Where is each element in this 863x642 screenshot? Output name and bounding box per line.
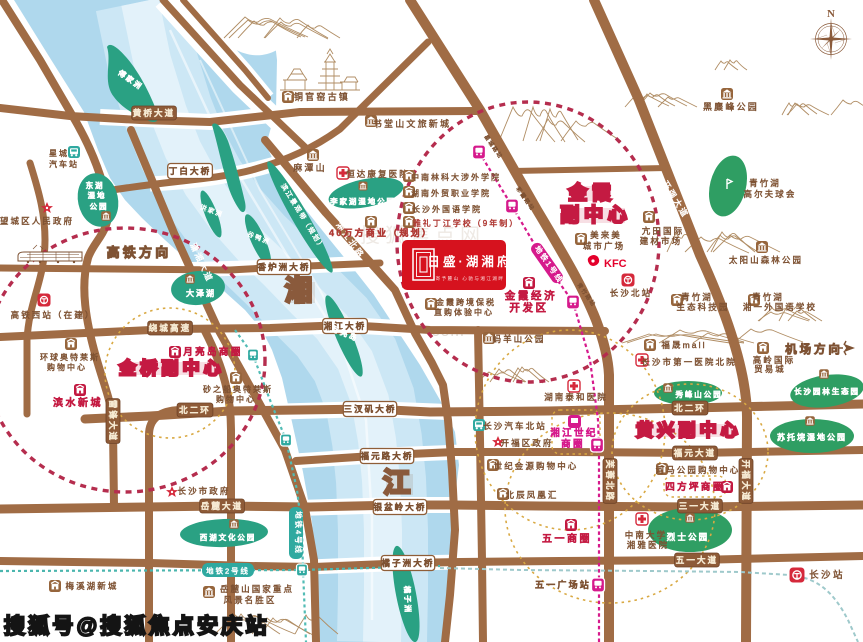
svg-text:开福大道: 开福大道 — [741, 460, 751, 502]
svg-text:五一广场站: 五一广场站 — [535, 579, 591, 590]
svg-text:湘雅医院: 湘雅医院 — [627, 540, 669, 550]
svg-text:四方坪商圈: 四方坪商圈 — [665, 481, 725, 493]
svg-text:中南大学: 中南大学 — [625, 530, 667, 540]
svg-text:城市广场: 城市广场 — [583, 241, 625, 251]
svg-text:雅礼丁江学校（9年制）: 雅礼丁江学校（9年制） — [413, 218, 519, 228]
svg-text:汽车站: 汽车站 — [49, 159, 79, 169]
svg-text:大泽湖: 大泽湖 — [186, 288, 216, 298]
svg-text:李家湖湿地公园: 李家湖湿地公园 — [329, 196, 396, 206]
svg-text:麻潭山: 麻潭山 — [293, 162, 327, 173]
svg-text:银盆岭大桥: 银盆岭大桥 — [372, 502, 426, 512]
svg-text:湖南外贸职业学院: 湖南外贸职业学院 — [411, 188, 491, 198]
svg-text:长沙市第一医院北院: 长沙市第一医院北院 — [641, 357, 736, 367]
svg-text:高铁西站（在建）: 高铁西站（在建） — [11, 310, 96, 320]
svg-text:购物中心: 购物中心 — [47, 362, 87, 372]
svg-text:开福区政府: 开福区政府 — [500, 438, 553, 448]
svg-text:湖南泰和医院: 湖南泰和医院 — [544, 392, 608, 402]
svg-text:蚂羊山公园: 蚂羊山公园 — [492, 334, 545, 344]
svg-text:青竹湖: 青竹湖 — [749, 178, 781, 188]
svg-text:高尔夫球会: 高尔夫球会 — [743, 189, 796, 199]
svg-text:河马公园购物中心: 河马公园购物中心 — [656, 465, 741, 475]
svg-text:滨水新城: 滨水新城 — [53, 396, 103, 409]
svg-text:北辰凤凰汇: 北辰凤凰汇 — [505, 490, 558, 500]
svg-text:长沙汽车北站: 长沙汽车北站 — [483, 421, 547, 431]
svg-text:青竹湖: 青竹湖 — [681, 292, 713, 302]
svg-text:岳麓山国家重点: 岳麓山国家重点 — [220, 584, 294, 594]
svg-text:五一商圈: 五一商圈 — [542, 532, 592, 545]
svg-text:湘江世纪: 湘江世纪 — [550, 427, 598, 439]
svg-text:北二环: 北二环 — [179, 405, 211, 415]
svg-text:湘一外国语学校: 湘一外国语学校 — [743, 302, 817, 312]
svg-text:世纪金源购物中心: 世纪金源购物中心 — [494, 461, 579, 471]
svg-text:公园: 公园 — [90, 202, 109, 211]
svg-text:书堂山文旅新城: 书堂山文旅新城 — [373, 118, 451, 129]
svg-text:恒达康复医院: 恒达康复医院 — [346, 169, 410, 179]
svg-text:丁白大桥: 丁白大桥 — [169, 166, 211, 176]
svg-text:N: N — [827, 8, 835, 20]
svg-text:日盛·湖湘府: 日盛·湖湘府 — [427, 254, 512, 269]
svg-text:高铁方向: 高铁方向 — [107, 245, 172, 260]
svg-text:寄予麓山 心驰与湘江湖畔: 寄予麓山 心驰与湘江湖畔 — [436, 275, 505, 282]
svg-text:三一大道: 三一大道 — [679, 501, 721, 511]
svg-text:美来美: 美来美 — [590, 230, 622, 240]
svg-text:青竹湖: 青竹湖 — [752, 292, 784, 302]
svg-text:橘子洲大桥: 橘子洲大桥 — [380, 558, 434, 568]
svg-text:金霞: 金霞 — [567, 181, 616, 204]
svg-text:绕城高速: 绕城高速 — [149, 323, 191, 333]
svg-text:西湖文化公园: 西湖文化公园 — [200, 532, 256, 542]
svg-text:湿地: 湿地 — [88, 190, 107, 200]
svg-text:长沙外国语学院: 长沙外国语学院 — [412, 204, 482, 214]
svg-text:雷锋大道: 雷锋大道 — [108, 400, 118, 442]
svg-text:芙蓉北路: 芙蓉北路 — [605, 459, 615, 502]
svg-text:五一大道: 五一大道 — [676, 555, 718, 565]
svg-text:生态科技园: 生态科技园 — [676, 302, 729, 312]
svg-text:风景名胜区: 风景名胜区 — [223, 595, 276, 605]
svg-text:太阳山森林公园: 太阳山森林公园 — [729, 255, 803, 265]
svg-text:长沙北站: 长沙北站 — [610, 288, 652, 298]
svg-text:梅溪湖新城: 梅溪湖新城 — [65, 581, 118, 591]
svg-text:烈士公园: 烈士公园 — [667, 532, 709, 542]
svg-text:贸易城: 贸易城 — [754, 364, 786, 374]
svg-text:橘子洲: 橘子洲 — [402, 585, 413, 615]
svg-text:江: 江 — [383, 468, 417, 498]
svg-text:三汊矶大桥: 三汊矶大桥 — [343, 404, 396, 414]
svg-text:机场方向: 机场方向 — [785, 342, 843, 356]
svg-text:长沙市政府: 长沙市政府 — [177, 486, 230, 496]
svg-text:苏托垸湿地公园: 苏托垸湿地公园 — [777, 432, 847, 442]
svg-text:黑麋峰公园: 黑麋峰公园 — [703, 101, 759, 112]
svg-text:购物中心: 购物中心 — [216, 394, 256, 404]
svg-text:月亮岛商圈: 月亮岛商圈 — [182, 346, 243, 358]
svg-text:亢田国际: 亢田国际 — [642, 226, 684, 236]
svg-text:商圈: 商圈 — [561, 438, 585, 450]
svg-text:建材市场: 建材市场 — [640, 236, 682, 246]
svg-text:砂之船奥特莱斯: 砂之船奥特莱斯 — [203, 384, 273, 394]
svg-text:北二环: 北二环 — [674, 403, 706, 413]
svg-text:岳麓大道: 岳麓大道 — [201, 501, 243, 511]
svg-text:黄桥大道: 黄桥大道 — [133, 108, 175, 118]
svg-text:铜官窑古镇: 铜官窑古镇 — [294, 91, 350, 102]
svg-text:福元路大桥: 福元路大桥 — [359, 451, 413, 461]
svg-text:金霞跨境保税: 金霞跨境保税 — [436, 297, 496, 307]
svg-text:环球奥特莱斯: 环球奥特莱斯 — [40, 352, 100, 362]
svg-text:开发区: 开发区 — [509, 301, 548, 314]
svg-text:中南林科大涉外学院: 中南林科大涉外学院 — [411, 172, 501, 182]
svg-text:黄兴副中心: 黄兴副中心 — [636, 420, 742, 440]
svg-text:望城区人民政府: 望城区人民政府 — [0, 216, 74, 226]
svg-text:直购体验中心: 直购体验中心 — [434, 307, 494, 317]
svg-text:地铁4号线: 地铁4号线 — [294, 511, 304, 555]
svg-text:副中心: 副中心 — [560, 203, 631, 226]
svg-text:地铁2号线: 地铁2号线 — [206, 566, 250, 576]
svg-text:星城: 星城 — [49, 149, 69, 158]
svg-text:秀峰山公园: 秀峰山公园 — [675, 389, 723, 399]
svg-text:金桥副中心: 金桥副中心 — [118, 358, 225, 378]
svg-text:福晟mall: 福晟mall — [661, 340, 706, 350]
svg-text:40万方商业（规划）: 40万方商业（规划） — [329, 227, 433, 238]
svg-text:香炉洲大桥: 香炉洲大桥 — [256, 262, 310, 272]
svg-text:湘: 湘 — [285, 276, 319, 306]
svg-text:长沙站: 长沙站 — [809, 569, 845, 581]
svg-text:福元大道: 福元大道 — [673, 448, 716, 458]
svg-text:东湖: 东湖 — [86, 180, 105, 190]
svg-text:金霞经济: 金霞经济 — [504, 289, 557, 302]
svg-text:长沙园林生态园: 长沙园林生态园 — [794, 386, 860, 396]
svg-text:KFC: KFC — [604, 258, 627, 270]
svg-text:搜狐号@搜狐焦点安庆站: 搜狐号@搜狐焦点安庆站 — [4, 614, 270, 638]
